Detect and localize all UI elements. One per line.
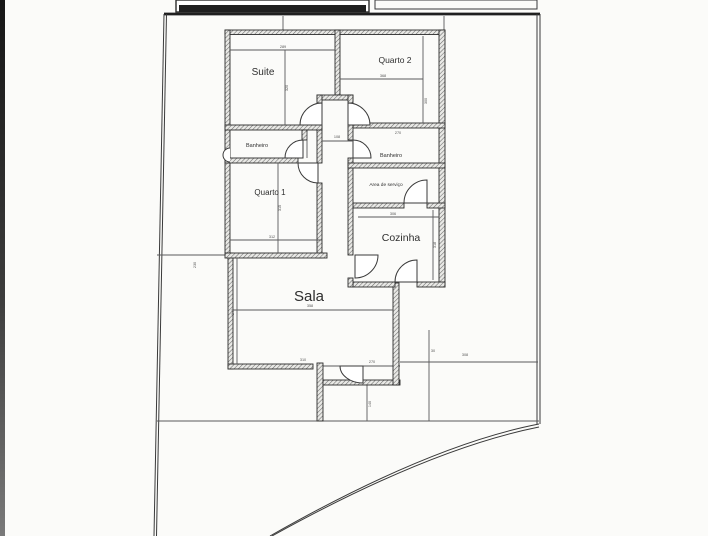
door-quarto1: [298, 163, 318, 183]
dim-walkway-h: 140: [368, 401, 372, 407]
wall-quarto1-bottom: [225, 253, 327, 258]
wall-cozinha-bottom-left: [353, 282, 395, 287]
floor-plan-scan: 289 320 368 300 108 270 312 315 306 318 …: [0, 0, 708, 536]
floor-plan-svg: 289 320 368 300 108 270 312 315 306 318 …: [0, 0, 708, 536]
wall-cozinha-bottom-right: [417, 282, 445, 287]
wall-banheiro1-divider: [302, 130, 307, 140]
dim-quarto2-h: 300: [424, 98, 428, 104]
wall-sala-bottom: [228, 364, 313, 369]
wall-hall-right-a: [348, 95, 353, 103]
room-label-servico: Area de serviço: [369, 182, 403, 188]
lot-boundary: [154, 14, 540, 536]
wall-sala-right: [393, 283, 399, 385]
dim-quarto2-w: 368: [380, 74, 386, 78]
dim-terrace-tick: 30: [431, 349, 435, 353]
wall-entry-stub: [317, 363, 323, 421]
room-label-cozinha: Cozinha: [382, 232, 421, 244]
wall-hall-left-a: [317, 95, 322, 103]
room-label-sala: Sala: [294, 288, 325, 305]
wall-left-upper: [225, 30, 230, 253]
dim-corridor-w: 108: [334, 135, 340, 139]
wall-cozinha-top-right: [427, 203, 445, 208]
wall-hall-left-c: [317, 183, 322, 258]
wall-hall-left-b: [317, 125, 322, 163]
dim-suite-w: 289: [280, 45, 286, 49]
scan-edge-artifact: [0, 0, 5, 536]
room-label-banheiro2: Banheiro: [380, 153, 402, 159]
dim-banheiro2-w: 270: [395, 131, 401, 135]
door-cozinha-hall: [355, 255, 378, 278]
wall-quarto1-top: [225, 158, 298, 163]
wall-right-exterior: [439, 30, 445, 287]
room-label-quarto2: Quarto 2: [378, 55, 411, 65]
dim-quarto1-w: 312: [269, 235, 275, 239]
dim-quarto1-h: 315: [278, 205, 282, 211]
dim-sala-bottom-w: 310: [300, 358, 306, 362]
door-servico: [404, 180, 427, 203]
top-structure-left-dark-band: [179, 5, 366, 12]
lot-boundary-left-outer: [154, 14, 164, 536]
room-label-suite: Suite: [252, 67, 275, 78]
door-cozinha-rear: [395, 260, 417, 282]
dim-sideyard-w: 230: [193, 262, 197, 268]
door-quarto2: [348, 103, 370, 125]
top-structure-right: [375, 0, 537, 9]
wall-cozinha-top-left: [353, 203, 404, 208]
door-banheiro1: [285, 140, 303, 158]
wall-suite-bottom: [225, 125, 322, 130]
door-suite: [300, 103, 322, 125]
lot-boundary-left-inner: [157, 14, 167, 536]
wall-hall-right-c: [348, 158, 353, 255]
dim-cozinha-w: 306: [390, 212, 396, 216]
door-banheiro2: [353, 140, 371, 158]
dim-sala-h: 240: [231, 309, 235, 315]
top-structures: [176, 0, 537, 12]
lot-corner-curve-outer: [270, 424, 539, 536]
dim-cozinha-h: 318: [433, 242, 437, 248]
banheiro1-fixture: [223, 148, 230, 162]
wall-hall-right-d: [348, 278, 353, 287]
wall-hall-right-b: [348, 125, 353, 140]
room-label-banheiro1: Banheiro: [246, 143, 268, 149]
lot-corner-curve-inner: [272, 427, 539, 536]
room-label-quarto1: Quarto 1: [254, 188, 286, 197]
wall-banheiro2-bottom: [348, 163, 445, 168]
wall-suite-quarto2-divider: [335, 30, 340, 95]
room-labels: Suite Quarto 2 Banheiro Banheiro Quarto …: [246, 55, 420, 305]
dim-suite-h: 320: [285, 85, 289, 91]
dim-terrace-w: 308: [462, 353, 468, 357]
dim-entry-w: 270: [369, 360, 375, 364]
